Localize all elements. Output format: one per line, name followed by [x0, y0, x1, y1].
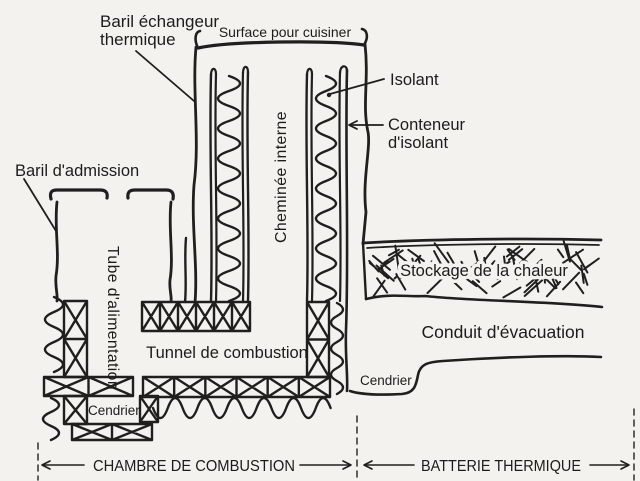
label-chambre-combustion: CHAMBRE DE COMBUSTION	[93, 458, 295, 475]
label-cendrier-gauche: Cendrier	[88, 403, 140, 418]
diagram-page: Baril échangeur thermique Surface pour c…	[0, 0, 640, 481]
label-conteneur-2: d'isolant	[388, 134, 448, 152]
label-cheminee-interne: Cheminée interne	[273, 111, 290, 243]
label-conduit-evacuation: Conduit d'évacuation	[422, 322, 585, 342]
rocket-stove-diagram: Baril échangeur thermique Surface pour c…	[0, 0, 640, 481]
label-baril-admission: Baril d'admission	[15, 162, 139, 180]
label-cendrier-droit: Cendrier	[360, 373, 412, 388]
label-surface-cuisson: Surface pour cuisiner	[219, 24, 352, 40]
label-batterie-thermique: BATTERIE THERMIQUE	[421, 458, 581, 475]
label-isolant: Isolant	[390, 71, 439, 89]
label-baril-echangeur-1: Baril échangeur	[100, 12, 219, 31]
label-conteneur-1: Conteneur	[388, 116, 466, 134]
label-tube-alimentation: Tube d'alimentation	[104, 246, 121, 390]
label-baril-echangeur-2: thermique	[100, 30, 176, 49]
label-tunnel-combustion: Tunnel de combustion	[146, 344, 308, 362]
label-stockage-chaleur: Stockage de la chaleur	[400, 262, 568, 280]
brick-masonry	[44, 301, 330, 440]
